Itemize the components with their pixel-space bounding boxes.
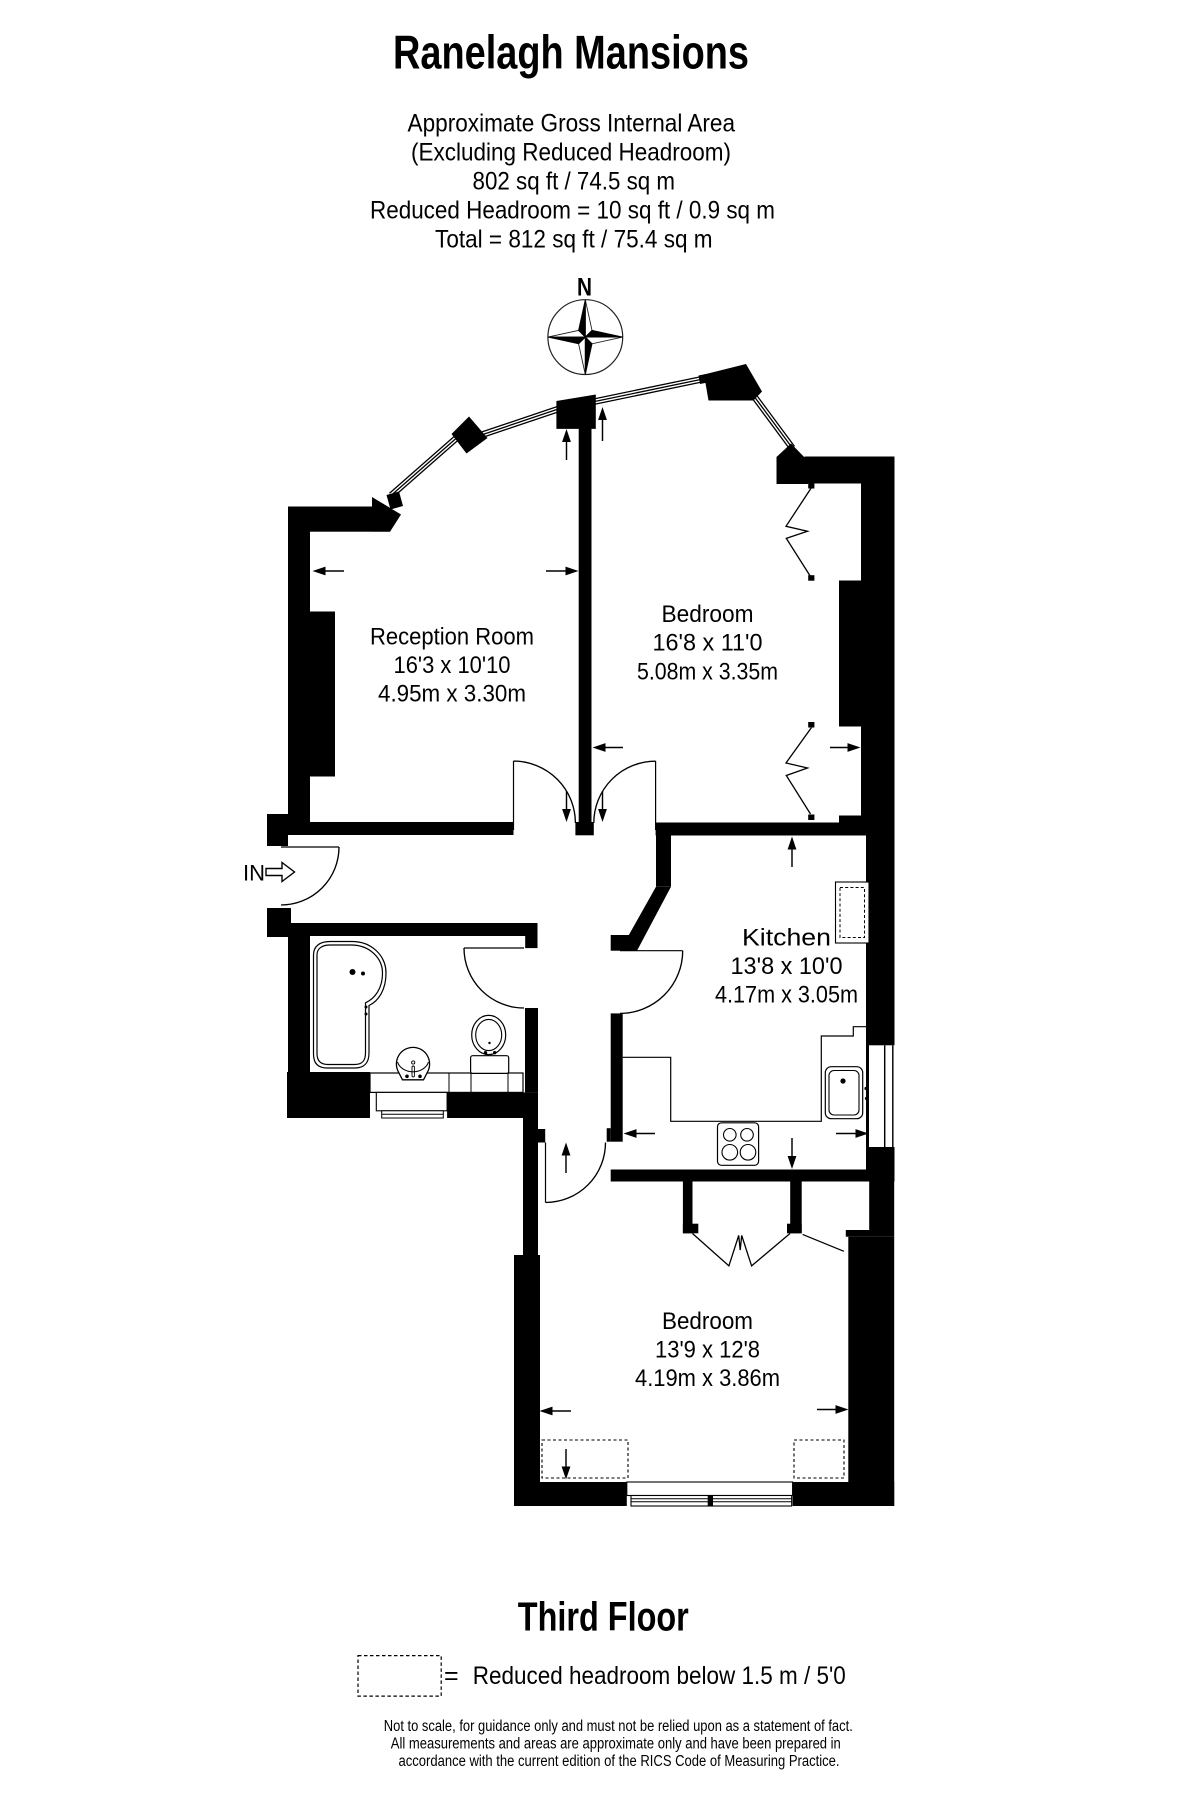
svg-text:4.19m x 3.86m: 4.19m x 3.86m xyxy=(635,1365,780,1392)
svg-text:IN: IN xyxy=(243,861,265,886)
svg-text:N: N xyxy=(577,274,592,302)
svg-text:16'8 x 11'0: 16'8 x 11'0 xyxy=(653,630,763,657)
svg-text:5.08m x 3.35m: 5.08m x 3.35m xyxy=(637,658,778,685)
svg-text:4.17m x 3.05m: 4.17m x 3.05m xyxy=(715,982,858,1009)
svg-text:Reduced Headroom = 10 sq ft /: Reduced Headroom = 10 sq ft / 0.9 sq m xyxy=(370,197,775,225)
svg-text:4.95m x 3.30m: 4.95m x 3.30m xyxy=(378,681,526,708)
svg-text:Not to scale, for guidance onl: Not to scale, for guidance only and must… xyxy=(384,1718,853,1735)
svg-text:All measurements and areas are: All measurements and areas are approxima… xyxy=(391,1736,841,1753)
svg-text:Kitchen: Kitchen xyxy=(742,924,831,951)
svg-text:accordance with the current ed: accordance with the current edition of t… xyxy=(399,1753,840,1770)
svg-text:Bedroom: Bedroom xyxy=(662,601,754,628)
svg-text:Third Floor: Third Floor xyxy=(518,1593,689,1639)
svg-text:Reception Room: Reception Room xyxy=(370,623,534,650)
svg-text:Reduced headroom below 1.5 m /: Reduced headroom below 1.5 m / 5'0 xyxy=(473,1662,846,1690)
svg-text:Approximate Gross Internal Are: Approximate Gross Internal Area xyxy=(408,110,736,138)
svg-text:Ranelagh Mansions: Ranelagh Mansions xyxy=(393,26,749,79)
svg-text:=: = xyxy=(444,1662,459,1690)
svg-text:Total = 812 sq ft / 75.4 sq m: Total = 812 sq ft / 75.4 sq m xyxy=(435,226,713,254)
svg-text:16'3 x 10'10: 16'3 x 10'10 xyxy=(394,652,511,679)
svg-text:802 sq ft / 74.5 sq m: 802 sq ft / 74.5 sq m xyxy=(473,168,676,196)
svg-text:(Excluding Reduced Headroom): (Excluding Reduced Headroom) xyxy=(411,139,731,167)
svg-text:13'8 x 10'0: 13'8 x 10'0 xyxy=(731,953,843,980)
svg-text:Bedroom: Bedroom xyxy=(662,1308,753,1335)
svg-text:13'9 x 12'8: 13'9 x 12'8 xyxy=(655,1337,760,1364)
